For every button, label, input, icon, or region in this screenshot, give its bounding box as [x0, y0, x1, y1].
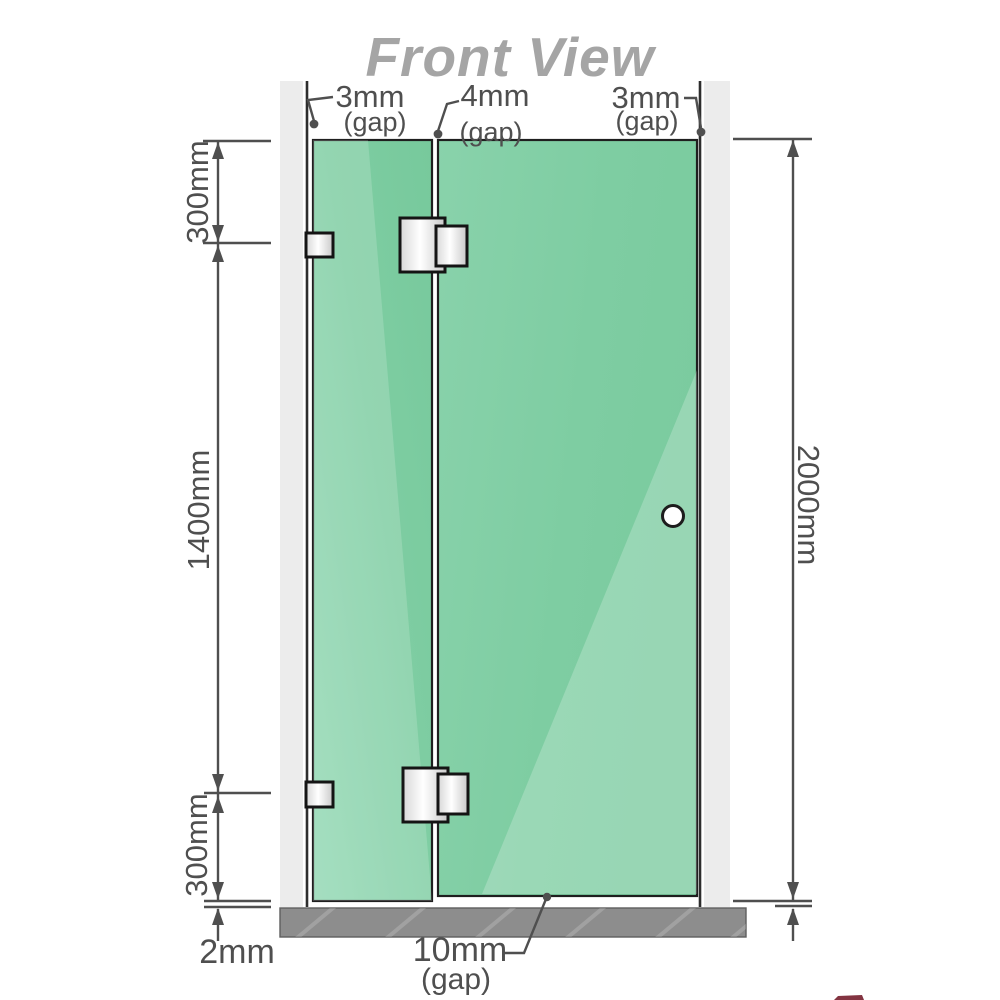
dim-left-middle-label: 1400mm	[181, 450, 216, 571]
dimension-right-height: 2000mm	[733, 139, 826, 941]
dimension-left-chain: 300mm 1400mm 300mm 2mm	[179, 140, 275, 971]
dim-floor-gap-label: 2mm	[199, 933, 275, 971]
gap-top-left-leader	[308, 97, 333, 121]
gap-bottom-suffix: (gap)	[421, 963, 491, 996]
callout-gap-top-left: 3mm (gap)	[308, 79, 407, 137]
callout-gap-top-middle: 4mm (gap)	[434, 78, 530, 147]
door-handle	[663, 506, 684, 527]
diagram-canvas: Front View	[0, 0, 1000, 1000]
wall-bracket-bottom	[306, 782, 333, 807]
glass-hinge-bottom	[403, 768, 468, 822]
wall-bracket-top	[306, 233, 333, 257]
right-wall-surface	[704, 81, 730, 907]
gap-top-middle-leader	[438, 101, 459, 131]
dim-left-bottom-label: 300mm	[179, 793, 214, 896]
gap-top-right-leader	[684, 98, 701, 128]
dim-right-height-label: 2000mm	[791, 445, 826, 566]
callout-gap-top-right: 3mm (gap)	[612, 80, 706, 136]
dim-left-top-label: 300mm	[180, 140, 215, 243]
right-wall	[700, 81, 730, 907]
gap-top-middle-value: 4mm	[461, 78, 530, 113]
gap-top-middle-suffix: (gap)	[459, 117, 522, 147]
artifact-red-sliver	[834, 995, 864, 1000]
gap-top-right-suffix: (gap)	[615, 106, 678, 136]
gap-top-left-suffix: (gap)	[343, 107, 406, 137]
left-wall	[280, 81, 307, 907]
glass-hinge-top	[400, 218, 467, 272]
left-wall-surface	[280, 81, 303, 907]
door-glass-panel	[438, 140, 697, 896]
front-view-diagram: Front View	[0, 0, 1000, 1000]
